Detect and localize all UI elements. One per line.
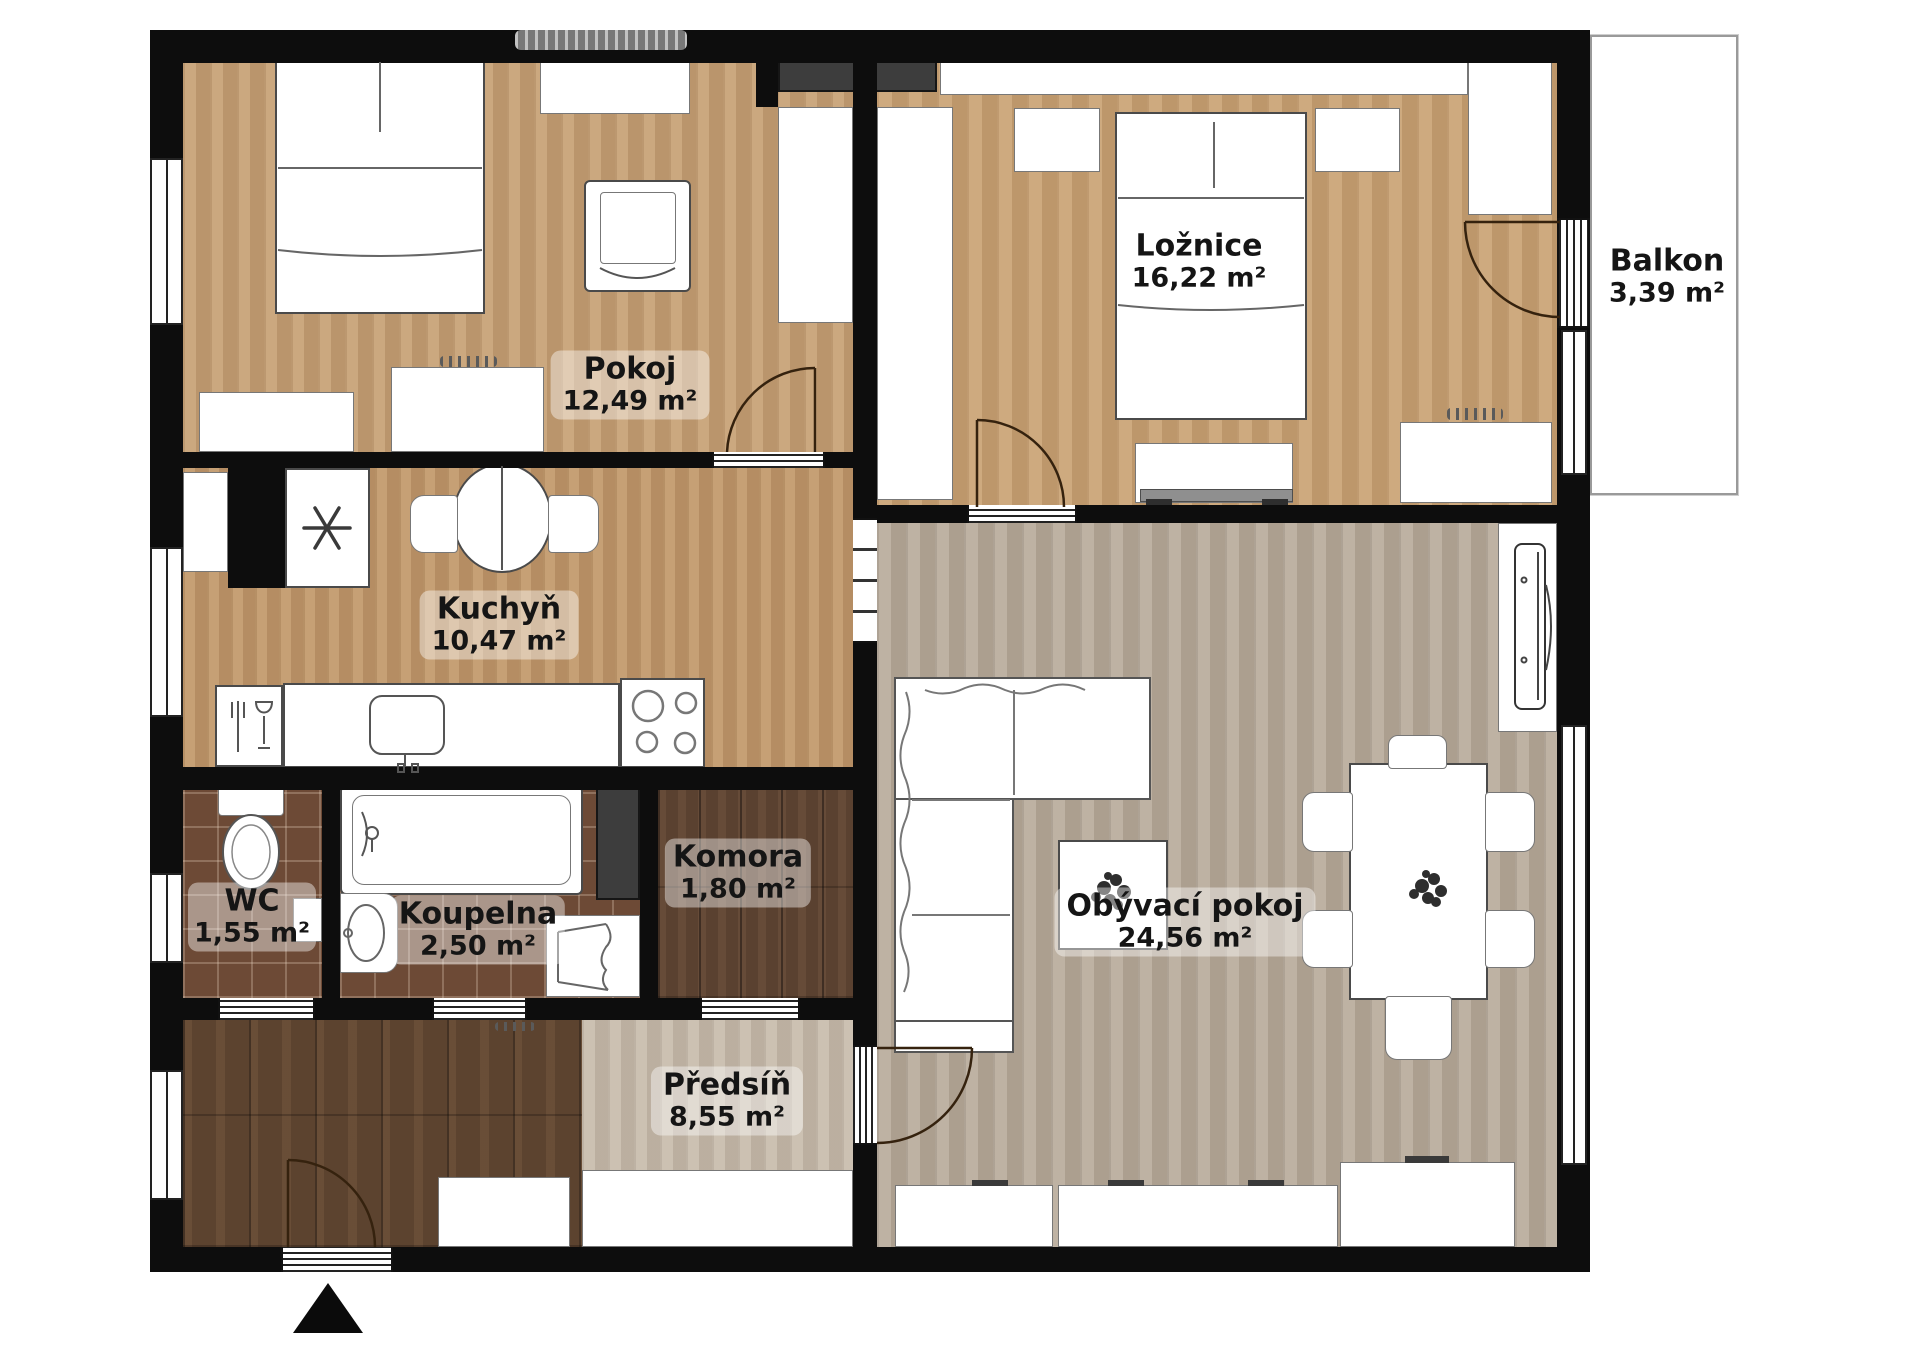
- cabinet-obyvaci-1: [895, 1185, 1053, 1247]
- door-threshold-obyvaci: [853, 1045, 877, 1145]
- cabinet-pokoj-1: [199, 392, 354, 452]
- door-threshold-pokoj: [712, 452, 825, 468]
- sideboard-obyvaci: [1340, 1162, 1515, 1247]
- window-pokoj: [150, 158, 183, 325]
- vent-strip-icon: [515, 30, 687, 50]
- room-name: Pokoj: [563, 353, 698, 387]
- room-area: 16,22 m²: [1132, 264, 1267, 295]
- dining-chair-left-1: [1302, 792, 1353, 852]
- room-label-obyvaci: Obývací pokoj 24,56 m²: [1055, 888, 1316, 957]
- room-name: Komora: [673, 841, 803, 875]
- kitchen-hatch: [853, 518, 877, 643]
- kitchen-chair-left: [410, 495, 458, 553]
- room-label-pokoj: Pokoj 12,49 m²: [551, 351, 710, 420]
- wall-top: [150, 30, 1590, 63]
- armchair-seat: [600, 192, 676, 264]
- nightstand-left: [1014, 108, 1100, 172]
- stove: [620, 678, 705, 768]
- toilet-tank: [218, 786, 284, 816]
- room-name: Balkon: [1609, 245, 1725, 279]
- room-label-predsin: Předsíň 8,55 m²: [651, 1067, 803, 1136]
- wall-wc-koupelna: [322, 790, 340, 998]
- door-threshold-entrance: [281, 1247, 393, 1272]
- cabinet-kuchyn-corner: [183, 472, 228, 572]
- door-threshold-koupelna: [432, 998, 527, 1020]
- dining-chair-right-2: [1485, 910, 1535, 968]
- dining-chair-top: [1388, 735, 1447, 769]
- wall-kuchyn-bottom: [183, 767, 877, 790]
- cabinet-handle: [972, 1180, 1008, 1186]
- cabinet-pokoj-2: [391, 367, 544, 452]
- room-area: 24,56 m²: [1067, 924, 1304, 955]
- dining-table: [1349, 763, 1488, 1000]
- window-kuchyn: [150, 547, 183, 717]
- sofa-armrest: [894, 1020, 1014, 1053]
- room-label-koupelna: Koupelna 2,50 m²: [391, 896, 565, 965]
- cabinet-predsin-1: [438, 1177, 570, 1247]
- dishwasher: [215, 685, 283, 767]
- radiator-icon: [495, 1022, 535, 1031]
- duct-column: [228, 468, 285, 588]
- room-name: Ložnice: [1132, 230, 1267, 264]
- cabinet-handle: [1108, 1180, 1144, 1186]
- room-area: 12,49 m²: [563, 387, 698, 418]
- dresser-loznice: [1400, 422, 1552, 503]
- cabinet-predsin-2: [582, 1170, 853, 1247]
- room-label-komora: Komora 1,80 m²: [665, 839, 811, 908]
- desk-pokoj: [540, 58, 690, 114]
- cabinet-handle: [1405, 1156, 1449, 1163]
- wardrobe-tall-loznice: [877, 107, 953, 500]
- bathroom-sink: [340, 893, 398, 973]
- room-area: 2,50 m²: [399, 932, 557, 963]
- room-name: Předsíň: [663, 1069, 791, 1103]
- room-label-balkon: Balkon 3,39 m²: [1597, 243, 1737, 312]
- window-predsin: [150, 1070, 183, 1200]
- room-area: 10,47 m²: [432, 627, 567, 658]
- wall-loznice-obyvaci-2: [1077, 505, 1557, 523]
- radiator-icon: [440, 356, 497, 367]
- entrance-arrow-icon: [293, 1283, 363, 1333]
- cabinet-obyvaci-2: [1058, 1185, 1338, 1247]
- room-name: Koupelna: [399, 898, 557, 932]
- wall-loznice-obyvaci-1: [877, 505, 967, 523]
- room-area: 8,55 m²: [663, 1103, 791, 1134]
- room-name: WC: [194, 885, 310, 919]
- door-threshold-wc: [218, 998, 315, 1020]
- window-obyvaci: [1561, 725, 1587, 1165]
- bed-double-pokoj: [275, 53, 485, 314]
- tv-icon: [1514, 543, 1546, 710]
- room-name: Kuchyň: [432, 593, 567, 627]
- radiator-icon: [1447, 408, 1503, 420]
- shaft-duct: [596, 788, 640, 900]
- room-area: 1,80 m²: [673, 875, 803, 906]
- wall-pokoj-kuchyn-2: [825, 452, 877, 468]
- wardrobe-pokoj: [778, 107, 853, 323]
- cabinet-handle: [1248, 1180, 1284, 1186]
- door-threshold-loznice: [967, 505, 1077, 523]
- nightstand-right: [1315, 108, 1400, 172]
- room-name: Obývací pokoj: [1067, 890, 1304, 924]
- window-wc: [150, 873, 183, 963]
- room-area: 1,55 m²: [194, 919, 310, 950]
- balcony-door-threshold: [1557, 218, 1590, 328]
- floor-plan: Pokoj 12,49 m² Ložnice 16,22 m² Balkon 3…: [0, 0, 1920, 1358]
- dining-chair-right-1: [1485, 792, 1535, 852]
- dining-chair-bottom: [1385, 996, 1452, 1060]
- room-label-loznice: Ložnice 16,22 m²: [1120, 228, 1279, 297]
- room-label-wc: WC 1,55 m²: [188, 883, 316, 952]
- kitchen-table-round: [452, 463, 552, 573]
- wall-pokoj-kuchyn: [183, 452, 712, 468]
- room-label-kuchyn: Kuchyň 10,47 m²: [420, 591, 579, 660]
- window-loznice: [1561, 330, 1587, 475]
- fridge: [285, 468, 370, 588]
- kitchen-counter: [283, 683, 620, 768]
- kitchen-chair-right: [548, 495, 599, 553]
- wall-koupelna-komora: [640, 790, 658, 998]
- sofa-top-section: [894, 677, 1151, 800]
- bathtub-inner: [352, 795, 571, 885]
- closet-corner-loznice: [1468, 48, 1552, 215]
- door-threshold-komora: [700, 998, 800, 1020]
- wall-stub-top: [756, 30, 778, 107]
- room-area: 3,39 m²: [1609, 279, 1725, 310]
